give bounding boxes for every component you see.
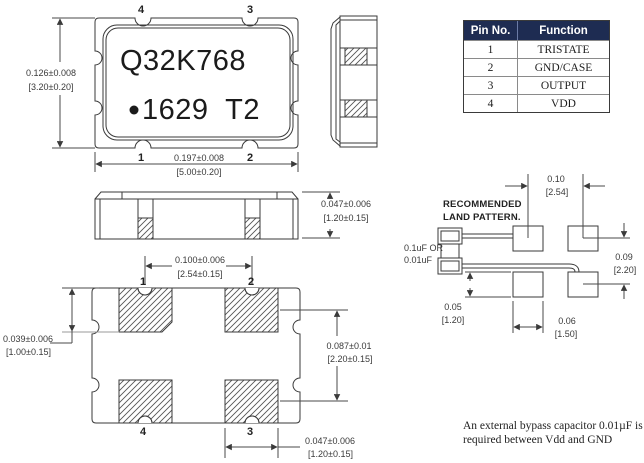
bottom-view-pin1-label: 1: [140, 276, 146, 288]
pin-number-cell: 1: [464, 41, 518, 58]
land-col-pitch-mm: [2.54]: [546, 187, 569, 197]
bottom-view-pad-pitch-in: 0.100±0.006: [175, 255, 225, 265]
front-view: 0.047±0.006 [1.20±0.15]: [95, 192, 371, 239]
top-view-height-mm: [3.20±0.20]: [29, 82, 74, 92]
top-view-pin4-label: 4: [138, 4, 145, 16]
land-pad-height-in: 0.05: [444, 302, 462, 312]
end-view-body: [340, 16, 377, 147]
front-view-lid: [95, 192, 298, 199]
front-view-height-mm: [1.20±0.15]: [324, 213, 369, 223]
pin-table-header-function: Function: [518, 21, 609, 40]
land-pattern: RECOMMENDED LAND PATTERN. 0.1uF OR 0.01u…: [404, 174, 636, 339]
land-pattern-title-line2: LAND PATTERN.: [443, 212, 521, 223]
top-view-width-in: 0.197±0.008: [174, 153, 224, 163]
land-pattern-pad-width-dimension: 0.06 [1.50]: [513, 301, 577, 339]
top-view-pin2-label: 2: [247, 152, 253, 164]
table-row: 3 OUTPUT: [464, 76, 609, 94]
bottom-view-pad-length-dimension: 0.039±0.006 [1.00±0.15]: [3, 288, 119, 357]
pin-function-cell: OUTPUT: [518, 77, 609, 94]
bottom-view-pad-width-in: 0.047±0.006: [305, 436, 355, 446]
land-pattern-pad-height-dimension: 0.05 [1.20]: [442, 272, 511, 325]
pin-function-cell: GND/CASE: [518, 59, 609, 76]
bottom-view-pin3-label: 3: [247, 426, 253, 438]
bottom-view-pad-width-mm: [1.20±0.15]: [308, 449, 353, 459]
end-view-pad-lower: [345, 100, 367, 117]
pin-table-header-row: Pin No. Function: [464, 21, 609, 40]
end-view-lid-inner: [336, 21, 340, 142]
note-line1: An external bypass capacitor 0.01µF is: [463, 420, 643, 434]
land-pad-width-mm: [1.50]: [555, 329, 578, 339]
oscillator-datasheet-drawing: Q32K768 1629 T2 4 3 1 2 0.126±0.008 [3.2…: [0, 0, 644, 463]
bottom-view-row-pitch-mm: [2.20±0.15]: [328, 354, 373, 364]
land-row-pitch-mm: [2.20]: [614, 265, 637, 275]
land-pattern-title-line1: RECOMMENDED: [443, 199, 522, 210]
bottom-view-pin2-label: 2: [248, 276, 254, 288]
pin-number-cell: 4: [464, 95, 518, 112]
top-view: Q32K768 1629 T2 4 3 1 2 0.126±0.008 [3.2…: [26, 4, 298, 177]
pin1-dot-marker: [130, 106, 139, 115]
pin-number-cell: 2: [464, 59, 518, 76]
top-view-pin3-label: 3: [247, 4, 253, 16]
bottom-view: 0.100±0.006 [2.54±0.15] 1 2 4 3 0.039±0.…: [3, 255, 372, 459]
land-row-pitch-in: 0.09: [615, 252, 633, 262]
part-marking-line2: 1629 T2: [142, 94, 260, 126]
table-row: 1 TRISTATE: [464, 40, 609, 58]
bypass-capacitor-note: An external bypass capacitor 0.01µF is r…: [463, 420, 643, 448]
land-pad-height-mm: [1.20]: [442, 315, 465, 325]
front-view-terminal-right-hatch: [245, 218, 260, 239]
note-line2: required between Vdd and GND: [463, 434, 643, 448]
bottom-view-pad-pitch-mm: [2.54±0.15]: [178, 269, 223, 279]
end-view-pad-upper: [345, 48, 367, 65]
pin-number-cell: 3: [464, 77, 518, 94]
front-view-height-in: 0.047±0.006: [321, 199, 371, 209]
pin-table-header-pin-no: Pin No.: [464, 21, 518, 40]
table-row: 4 VDD: [464, 94, 609, 112]
pin-function-cell: VDD: [518, 95, 609, 112]
end-view: [331, 16, 377, 147]
top-view-height-in: 0.126±0.008: [26, 68, 76, 78]
pin-function-cell: TRISTATE: [518, 41, 609, 58]
capacitor-value-label-line2: 0.01uF: [404, 255, 433, 265]
front-view-terminal-left-hatch: [138, 218, 153, 239]
top-view-width-dimension: 0.197±0.008 [5.00±0.20]: [95, 152, 298, 177]
bottom-view-pin4-label: 4: [140, 426, 147, 438]
bottom-view-row-pitch-in: 0.087±0.01: [327, 341, 372, 351]
table-row: 2 GND/CASE: [464, 58, 609, 76]
top-view-pin1-label: 1: [138, 152, 144, 164]
land-pad-bottom-left: [513, 272, 543, 297]
land-pad-width-in: 0.06: [558, 316, 576, 326]
capacitor-value-label-line1: 0.1uF OR: [404, 243, 444, 253]
bottom-view-pad-width-dimension: 0.047±0.006 [1.20±0.15]: [225, 428, 355, 459]
top-view-width-mm: [5.00±0.20]: [177, 167, 222, 177]
pin-function-table: Pin No. Function 1 TRISTATE 2 GND/CASE 3…: [463, 20, 610, 113]
bottom-view-pad-pitch-dimension: 0.100±0.006 [2.54±0.15]: [145, 255, 252, 284]
land-col-pitch-in: 0.10: [547, 174, 565, 184]
front-view-body: [95, 199, 298, 239]
top-view-package-outline: [95, 18, 298, 148]
front-view-height-dimension: 0.047±0.006 [1.20±0.15]: [302, 192, 371, 238]
part-marking-line1: Q32K768: [120, 45, 246, 77]
bottom-view-pad-length-mm: [1.00±0.15]: [6, 347, 51, 357]
bottom-view-pad-length-in: 0.039±0.006: [3, 334, 53, 344]
top-view-height-dimension: 0.126±0.008 [3.20±0.20]: [26, 18, 95, 148]
